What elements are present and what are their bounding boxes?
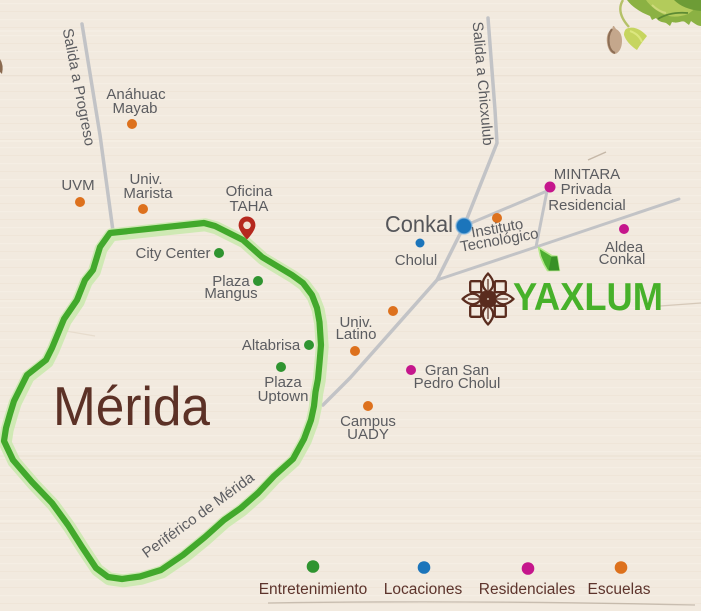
svg-text:Entretenimiento: Entretenimiento [259,581,368,598]
svg-text:Mangus: Mangus [204,285,257,302]
svg-text:TAHA: TAHA [230,198,269,215]
svg-text:Cholul: Cholul [395,252,438,269]
svg-text:Conkal: Conkal [599,251,646,268]
svg-text:Mérida: Mérida [53,375,210,437]
svg-text:Uptown: Uptown [258,388,309,405]
svg-text:City Center: City Center [135,245,210,262]
svg-text:Residenciales: Residenciales [479,581,576,598]
svg-text:UADY: UADY [347,426,389,443]
svg-text:Altabrisa: Altabrisa [242,337,301,354]
svg-text:Latino: Latino [336,326,377,343]
svg-text:Escuelas: Escuelas [588,581,651,598]
svg-text:Marista: Marista [123,185,173,202]
svg-text:Mayab: Mayab [112,100,157,117]
svg-text:Conkal: Conkal [385,211,453,237]
svg-text:Residencial: Residencial [548,197,626,214]
svg-text:YAXLUM: YAXLUM [513,276,663,319]
svg-text:Privada: Privada [561,181,613,198]
svg-text:UVM: UVM [61,177,94,194]
svg-text:Pedro Cholul: Pedro Cholul [414,375,501,392]
svg-text:Locaciones: Locaciones [384,581,463,598]
